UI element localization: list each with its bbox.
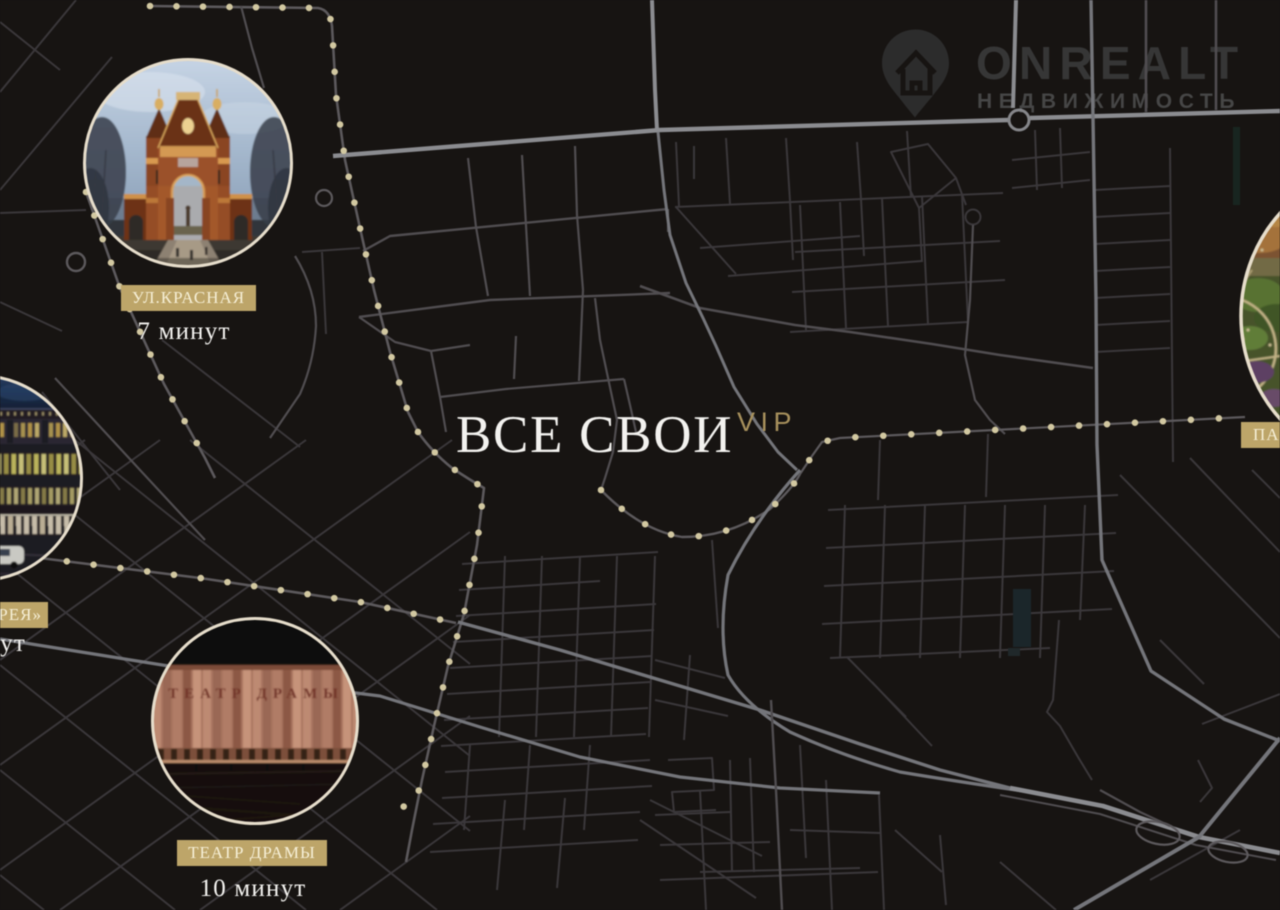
svg-text:«ГАЛЕРЕЯ»: «ГАЛЕРЕЯ» <box>0 605 42 624</box>
svg-text:ВСЕ СВОИ: ВСЕ СВОИ <box>456 406 733 464</box>
svg-text:5 минут: 5 минут <box>0 630 26 657</box>
svg-text:ТЕАТР ДРАМЫ: ТЕАТР ДРАМЫ <box>168 686 344 702</box>
svg-text:ПАРК ГАЛИЦКОГО: ПАРК ГАЛИЦКОГО <box>1253 425 1280 444</box>
svg-text:УЛ.КРАСНАЯ: УЛ.КРАСНАЯ <box>132 288 245 307</box>
svg-text:ТЕАТР ДРАМЫ: ТЕАТР ДРАМЫ <box>188 843 316 862</box>
svg-text:VIP: VIP <box>737 407 797 437</box>
svg-text:10 минут: 10 минут <box>200 875 307 902</box>
svg-text:7 минут: 7 минут <box>137 318 230 345</box>
